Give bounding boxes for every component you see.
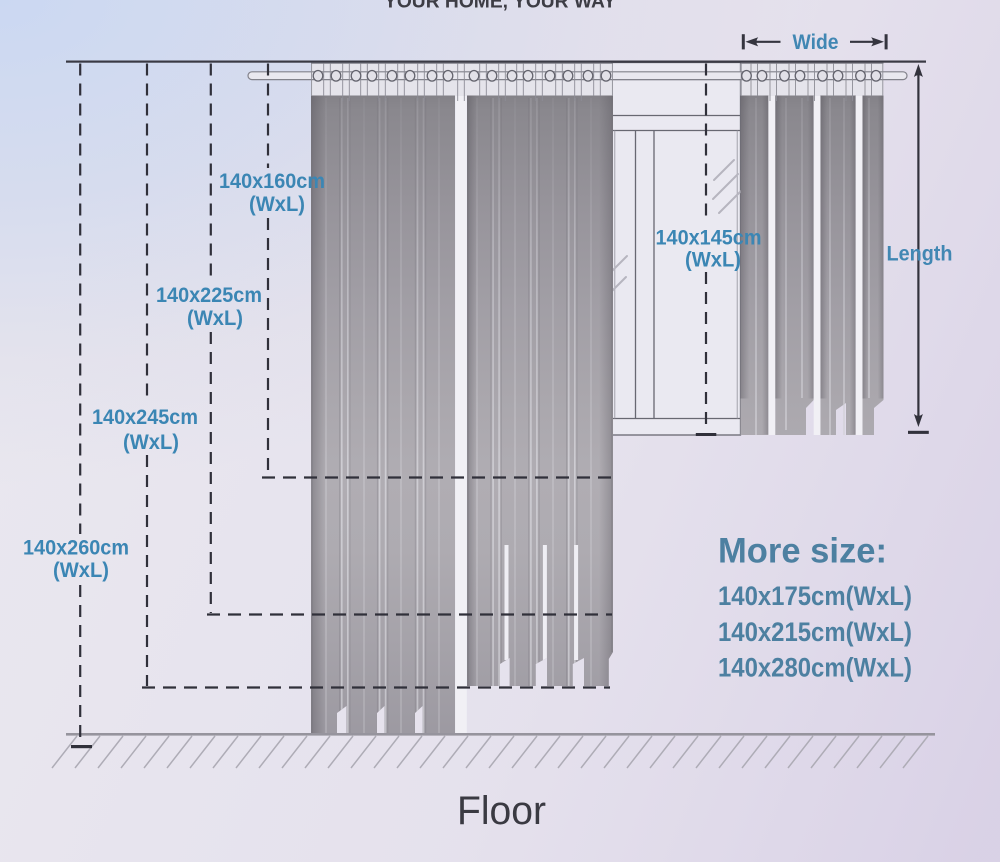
- svg-text:More size:: More size:: [718, 532, 887, 571]
- svg-text:YOUR HOME, YOUR WAY: YOUR HOME, YOUR WAY: [384, 0, 616, 13]
- svg-text:140x160cm: 140x160cm: [219, 169, 325, 193]
- svg-text:Floor: Floor: [457, 789, 546, 833]
- svg-text:(WxL): (WxL): [53, 558, 109, 582]
- svg-text:140x175cm(WxL): 140x175cm(WxL): [718, 581, 912, 611]
- svg-text:140x280cm(WxL): 140x280cm(WxL): [718, 652, 912, 682]
- svg-text:Wide: Wide: [793, 31, 839, 54]
- svg-text:(WxL): (WxL): [187, 306, 243, 330]
- svg-text:140x215cm(WxL): 140x215cm(WxL): [718, 617, 912, 647]
- svg-text:Length: Length: [887, 243, 953, 266]
- svg-text:(WxL): (WxL): [123, 430, 179, 454]
- svg-text:140x225cm: 140x225cm: [156, 283, 262, 307]
- svg-text:(WxL): (WxL): [685, 247, 741, 271]
- svg-text:140x245cm: 140x245cm: [92, 405, 198, 429]
- svg-text:(WxL): (WxL): [249, 192, 305, 216]
- svg-text:140x260cm: 140x260cm: [23, 535, 129, 559]
- svg-text:140x145cm: 140x145cm: [656, 225, 762, 249]
